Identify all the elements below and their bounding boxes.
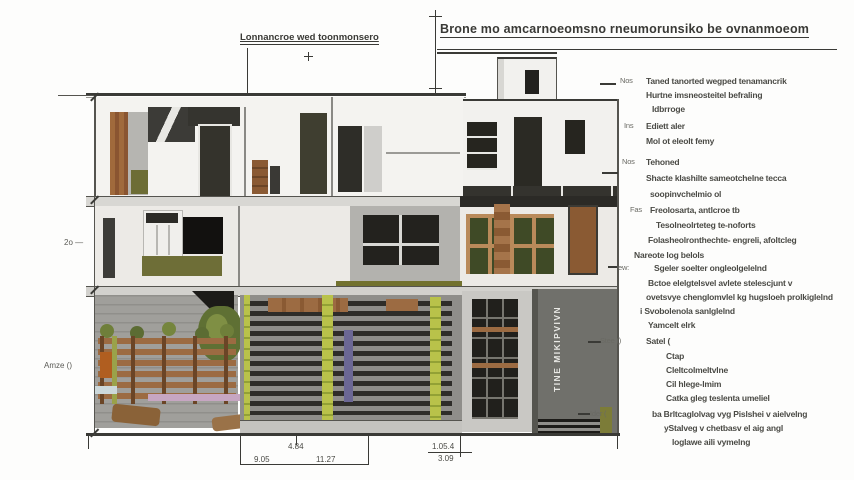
note-line: Folasheolronthechte- engreli, afoltcleg: [648, 235, 797, 245]
screen-top-rail-1: [268, 298, 348, 312]
window-wood-bar-2: [472, 363, 518, 368]
note-line: ba Brltcaglolvag vyg Pislshei v aielveln…: [652, 409, 807, 419]
alcove-window: [363, 215, 439, 265]
note-line: Ediett aler: [646, 121, 685, 131]
dim-drop-far-right: [617, 435, 618, 449]
dim-label-right: 11.27: [316, 455, 335, 464]
cabinet-mullion-1: [156, 225, 158, 255]
dim-label-height-a: 1.05.4: [432, 442, 454, 451]
note-line: Cil hlege-lmim: [666, 379, 721, 389]
sublabel-leader-line: [247, 48, 248, 93]
left-dim-line: [94, 98, 95, 435]
olive-wainscot: [142, 256, 222, 276]
page-title: Brone mo amcarnoeomsno rneumorunsiko be …: [440, 22, 809, 38]
interior-door-1: [200, 126, 230, 196]
architectural-section-sheet: Brone mo amcarnoeomsno rneumorunsiko be …: [0, 0, 854, 480]
note-leader-3: [608, 266, 617, 268]
right-header-band: [460, 196, 618, 207]
roof-penthouse: [497, 57, 557, 102]
interior-door-3: [338, 126, 362, 192]
dim-underline-right: [428, 452, 472, 453]
cabinet-mullion-2: [168, 225, 170, 255]
note-line: Ctap: [666, 351, 684, 361]
door-header-band: [188, 107, 240, 126]
note-line: Mol ot eleolt femy: [646, 136, 714, 146]
partition-wall-3: [238, 206, 240, 287]
left-label-upper: 2o —: [64, 238, 83, 247]
stair-rail-line: [386, 152, 460, 154]
dim-label-height-b: 3.09: [438, 454, 454, 463]
tv-band: [146, 213, 178, 223]
title-rule-short: [437, 52, 557, 54]
dim-label-total: 4.84: [288, 442, 304, 451]
note-marker: Stee (): [600, 336, 621, 345]
dim-drop-3: [460, 435, 461, 457]
left-dim-extension: [58, 95, 94, 96]
window-mullion-v: [399, 215, 402, 265]
note-line: Hurtne imsneosteitel befraling: [646, 90, 762, 100]
wood-screen-green-panels: [466, 214, 554, 274]
facade-window-c: [565, 120, 585, 154]
note-line: Taned tanorted wegped tenamancrik: [646, 76, 787, 86]
window-wood-bar-1: [472, 327, 518, 332]
note-marker: Ins: [624, 121, 633, 130]
tv-cabinet: [143, 210, 183, 258]
facade-door-b: [514, 117, 542, 187]
title-leader-tick-top: [429, 16, 442, 17]
note-line: Tehoned: [646, 157, 679, 167]
note-marker: Fas: [630, 205, 642, 214]
olive-cabinet: [131, 170, 148, 194]
tall-window: [472, 299, 518, 419]
blue-sliver: [95, 386, 117, 394]
note-leader-1: [600, 83, 616, 85]
title-leader-line: [435, 10, 436, 94]
note-line: Bctoe elelgtelsvel avlete stelescjunt v: [648, 278, 792, 288]
window-mullion-h: [363, 243, 439, 246]
note-line: loglawe aili vymelng: [672, 437, 750, 447]
dim-drop-1: [240, 435, 241, 465]
bamboo-post-edge: [244, 295, 250, 427]
note-leader-2: [602, 172, 618, 174]
note-line: ovetsvye chenglomvlel kg hugsloeh prolki…: [646, 292, 833, 302]
note-line: Cleltcolmeltvlne: [666, 365, 728, 375]
screen-center-post: [494, 204, 510, 274]
dim-bracket-bottom: [240, 464, 368, 465]
interior-door-2: [300, 113, 327, 194]
note-marker: Nos: [620, 76, 633, 85]
purple-strip: [344, 330, 353, 402]
dark-post: [103, 218, 115, 278]
note-line: yStalveg v chetbasv el aig angl: [664, 423, 783, 433]
note-line: soopinvchelmio ol: [650, 189, 721, 199]
note-leader-5: [578, 413, 590, 415]
note-marker: Ider (: [590, 409, 606, 418]
wood-dresser: [252, 160, 268, 194]
note-line: Satel (: [646, 336, 670, 346]
note-marker: Nos: [622, 157, 635, 166]
facade-window-a: [467, 122, 497, 170]
left-label-lower: Amze (): [44, 361, 72, 370]
roof-line-left: [86, 93, 466, 96]
dark-fixture: [270, 166, 280, 194]
note-line: Tesolneolrteteg te-noforts: [656, 220, 755, 230]
wardrobe-cabinet: [110, 112, 128, 195]
note-line: Nareote log belols: [634, 250, 704, 260]
note-marker: ew:: [618, 263, 629, 272]
note-line: Idbrroge: [652, 104, 685, 114]
vertical-wall-text: TINE MIKIPVIVN: [552, 296, 562, 392]
penthouse-window: [525, 70, 539, 94]
note-line: Sgeler soelter ongleolgelelnd: [654, 263, 767, 273]
note-line: Catka gleg teslenta umeliel: [666, 393, 770, 403]
bamboo-post-2: [430, 297, 441, 427]
dim-label-left: 9.05: [254, 455, 270, 464]
dim-drop-far-left: [88, 435, 89, 449]
partition-wall-1: [244, 107, 246, 197]
section-sublabel: Lonnancroe wed toonmonsero: [240, 32, 379, 45]
note-line: Shacte klashilte sameotchelne tecca: [646, 173, 786, 183]
orange-planter: [100, 352, 112, 378]
light-panel: [364, 126, 382, 192]
note-line: Yamcelt elrk: [648, 320, 695, 330]
sublabel-cross-v: [308, 52, 309, 61]
screen-top-rail-2: [386, 299, 418, 311]
title-rule-long: [437, 49, 837, 50]
wood-entry-door: [570, 207, 596, 273]
title-leader-tick-bottom: [429, 88, 442, 89]
dark-screen-panel: [183, 217, 223, 254]
ground-line: [86, 433, 620, 436]
dim-drop-2: [368, 435, 369, 465]
note-line: i Svobolenola sanlglelnd: [640, 306, 735, 316]
note-line: Freolosarta, antlcroe tb: [650, 205, 740, 215]
bamboo-post-1: [322, 295, 333, 427]
partition-wall-2: [331, 97, 333, 197]
